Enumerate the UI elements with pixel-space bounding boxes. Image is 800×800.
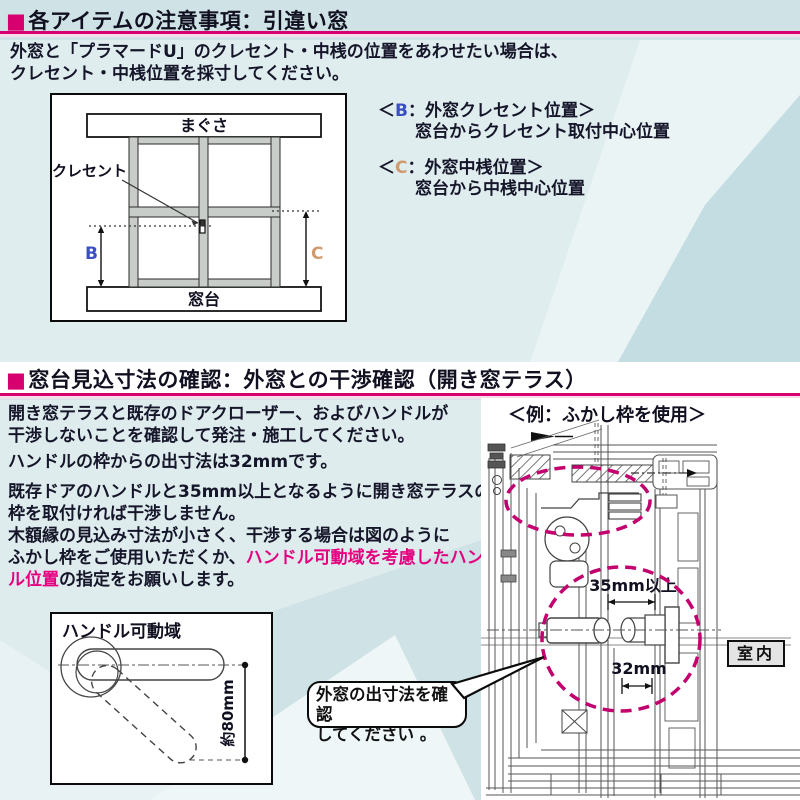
para3-line5-highlight: ル位置 bbox=[8, 570, 59, 590]
note-c-open: ＜ bbox=[378, 158, 395, 178]
section2-para3: 既存ドアのハンドルと35mm以上となるように開き窓テラスの 枠を取付ければ干渉し… bbox=[8, 481, 501, 591]
window-frame-rails bbox=[129, 137, 280, 287]
sill-label: 窓台 bbox=[188, 290, 220, 309]
cross-section-drawing: 35mm以上 32mm bbox=[481, 398, 800, 800]
section1-intro: 外窓と「プラマードU」のクレセント・中桟の位置をあわせたい場合は、 クレセント・… bbox=[10, 41, 568, 85]
lintel-label: まぐさ bbox=[180, 116, 228, 135]
note-b-open: ＜ bbox=[378, 101, 395, 121]
para3-line5-post: の指定をお願いします。 bbox=[59, 570, 244, 590]
handle-range-diagram: 約80mm bbox=[52, 614, 270, 782]
note-b-key: B bbox=[395, 101, 408, 121]
handle-range-box: ハンドル可動域 約80mm bbox=[50, 612, 273, 785]
window-diagram-box: クレセント B C まぐさ 窓台 bbox=[50, 93, 347, 322]
handle-dim-label: 約80mm bbox=[219, 679, 237, 746]
para3-line4-highlight: ハンドル可動域を考慮したハンド bbox=[246, 548, 501, 568]
section1-marker-icon: ■ bbox=[6, 9, 26, 33]
note-c-key: C bbox=[395, 158, 407, 178]
para3-line2: 枠を取付ければ干渉しません。 bbox=[8, 504, 246, 524]
crescent-label: クレセント bbox=[52, 162, 127, 180]
intro-line1: 外窓と「プラマードU」のクレセント・中桟の位置をあわせたい場合は、 bbox=[10, 42, 568, 62]
handle-dimension: 約80mm bbox=[219, 662, 248, 763]
dimension-b: B bbox=[85, 226, 212, 287]
note-b-desc: 窓台からクレセント取付中心位置 bbox=[415, 117, 670, 142]
section1-title: 各アイテムの注意事項：引違い窓 bbox=[28, 9, 348, 33]
para3-line1: 既存ドアのハンドルと35mm以上となるように開き窓テラスの bbox=[8, 482, 491, 502]
callout-line2: してください 。 bbox=[316, 725, 436, 744]
section2-header: ■窓台見込寸法の確認：外窓との干渉確認（開き窓テラス） bbox=[6, 364, 587, 394]
section2-marker-icon: ■ bbox=[6, 368, 26, 392]
para3-line3: 木額縁の見込み寸法が小さく、干渉する場合は図のように bbox=[8, 526, 450, 546]
note-c-desc: 窓台から中桟中心位置 bbox=[415, 174, 585, 199]
section2-para2: ハンドルの枠からの出寸法は32mmです。 bbox=[8, 451, 337, 473]
dim-b-label: B bbox=[85, 244, 98, 264]
dim-32mm-label: 32mm bbox=[611, 659, 667, 678]
dim-c-label: C bbox=[311, 244, 323, 264]
example-label: ＜例：ふかし枠を使用＞ bbox=[508, 401, 706, 427]
para3-line4-pre: ふかし枠をご使用いただくか、 bbox=[8, 548, 246, 568]
intro-line2: クレセント・中桟位置を採寸してください。 bbox=[10, 64, 349, 84]
para1-line1: 開き窓テラスと既存のドアクローザー、およびハンドルが bbox=[8, 404, 448, 424]
para1-line2: 干渉しないことを確認して発注・施工してください。 bbox=[8, 426, 414, 446]
room-label: 室内 bbox=[727, 640, 785, 667]
callout-line1: 外窓の出寸法を確認 bbox=[316, 685, 448, 724]
section1-header: ■各アイテムの注意事項：引違い窓 bbox=[6, 5, 349, 35]
callout-tail bbox=[430, 640, 555, 710]
window-diagram: クレセント B C まぐさ 窓台 bbox=[52, 95, 344, 319]
document-page: ■各アイテムの注意事項：引違い窓 外窓と「プラマードU」のクレセント・中桟の位置… bbox=[0, 0, 800, 800]
section2-title: 窓台見込寸法の確認：外窓との干渉確認（開き窓テラス） bbox=[28, 368, 586, 392]
lower-details bbox=[562, 710, 587, 733]
section2-para1: 開き窓テラスと既存のドアクローザー、およびハンドルが 干渉しないことを確認して発… bbox=[8, 403, 448, 447]
